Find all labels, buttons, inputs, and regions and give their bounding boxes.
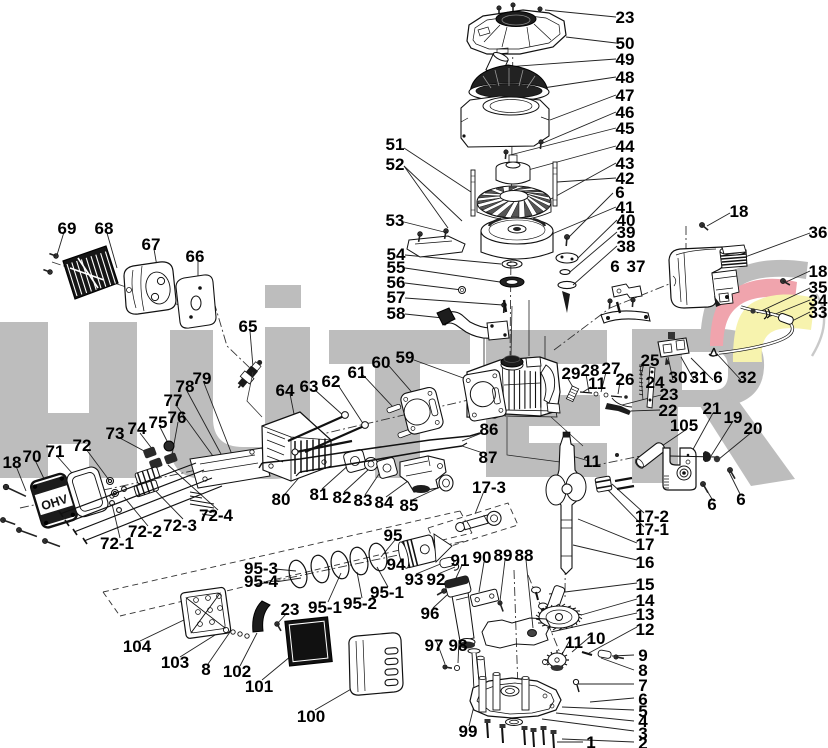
svg-text:17-3: 17-3: [472, 478, 506, 497]
svg-text:18: 18: [3, 453, 22, 472]
svg-text:99: 99: [459, 722, 478, 741]
svg-text:94: 94: [387, 555, 406, 574]
svg-text:71: 71: [46, 442, 65, 461]
svg-text:95-1: 95-1: [308, 598, 342, 617]
svg-text:95-4: 95-4: [244, 572, 279, 591]
svg-text:64: 64: [276, 381, 295, 400]
svg-text:74: 74: [128, 419, 147, 438]
svg-text:85: 85: [400, 496, 419, 515]
svg-text:62: 62: [322, 372, 341, 391]
svg-text:49: 49: [616, 50, 635, 69]
svg-text:6: 6: [713, 368, 722, 387]
svg-text:8: 8: [201, 660, 210, 679]
svg-text:103: 103: [161, 653, 189, 672]
svg-text:95: 95: [384, 526, 403, 545]
svg-text:22: 22: [659, 401, 678, 420]
svg-text:25: 25: [641, 351, 660, 370]
svg-text:81: 81: [310, 485, 329, 504]
svg-text:80: 80: [272, 490, 291, 509]
svg-text:38: 38: [617, 237, 636, 256]
svg-text:11: 11: [565, 633, 583, 652]
svg-text:23: 23: [281, 600, 300, 619]
svg-text:19: 19: [724, 408, 743, 427]
svg-text:20: 20: [744, 419, 763, 438]
svg-text:82: 82: [333, 488, 352, 507]
svg-text:63: 63: [300, 377, 319, 396]
svg-text:12: 12: [636, 620, 655, 639]
svg-text:21: 21: [703, 399, 722, 418]
svg-text:45: 45: [616, 119, 635, 138]
svg-text:90: 90: [473, 548, 492, 567]
svg-text:72-2: 72-2: [128, 522, 162, 541]
svg-text:84: 84: [375, 493, 394, 512]
svg-text:72: 72: [73, 436, 92, 455]
svg-text:92: 92: [427, 570, 446, 589]
svg-text:96: 96: [421, 604, 440, 623]
svg-text:66: 66: [186, 247, 205, 266]
svg-text:37: 37: [627, 257, 646, 276]
svg-text:2: 2: [638, 734, 647, 748]
svg-text:33: 33: [809, 303, 828, 322]
svg-text:16: 16: [636, 553, 655, 572]
svg-text:11: 11: [588, 374, 606, 393]
svg-text:30: 30: [669, 368, 688, 387]
svg-text:31: 31: [690, 368, 709, 387]
svg-text:83: 83: [354, 491, 373, 510]
svg-text:76: 76: [168, 408, 187, 427]
svg-text:100: 100: [297, 707, 325, 726]
svg-text:86: 86: [480, 420, 499, 439]
svg-text:65: 65: [239, 317, 258, 336]
svg-text:53: 53: [386, 211, 405, 230]
svg-text:87: 87: [479, 448, 498, 467]
svg-text:70: 70: [23, 447, 42, 466]
svg-text:6: 6: [736, 490, 745, 509]
svg-text:29: 29: [562, 364, 581, 383]
svg-text:104: 104: [123, 637, 152, 656]
svg-text:60: 60: [372, 353, 391, 372]
svg-text:95-1: 95-1: [370, 583, 404, 602]
svg-text:68: 68: [95, 219, 114, 238]
svg-text:1: 1: [586, 733, 595, 748]
svg-text:48: 48: [616, 68, 635, 87]
svg-text:97: 97: [425, 636, 444, 655]
svg-text:58: 58: [387, 304, 406, 323]
svg-text:88: 88: [515, 546, 534, 565]
svg-text:10: 10: [587, 629, 606, 648]
svg-text:67: 67: [142, 235, 161, 254]
svg-text:101: 101: [245, 677, 273, 696]
svg-text:79: 79: [193, 369, 212, 388]
svg-text:91: 91: [451, 551, 470, 570]
svg-text:26: 26: [616, 370, 635, 389]
svg-text:11: 11: [583, 452, 601, 471]
svg-text:17: 17: [636, 535, 655, 554]
svg-text:98: 98: [449, 636, 468, 655]
svg-text:89: 89: [494, 546, 513, 565]
svg-text:23: 23: [616, 8, 635, 27]
svg-text:52: 52: [386, 155, 405, 174]
svg-text:93: 93: [405, 570, 424, 589]
svg-text:73: 73: [106, 424, 125, 443]
svg-text:6: 6: [610, 257, 619, 276]
svg-text:51: 51: [386, 135, 405, 154]
svg-text:75: 75: [149, 413, 168, 432]
svg-text:72-4: 72-4: [199, 506, 234, 525]
svg-text:36: 36: [809, 223, 828, 242]
svg-text:69: 69: [58, 219, 77, 238]
svg-text:18: 18: [730, 202, 749, 221]
svg-text:61: 61: [348, 363, 367, 382]
svg-text:6: 6: [707, 495, 716, 514]
svg-text:32: 32: [738, 368, 757, 387]
svg-text:59: 59: [396, 348, 415, 367]
svg-text:72-3: 72-3: [163, 516, 197, 535]
